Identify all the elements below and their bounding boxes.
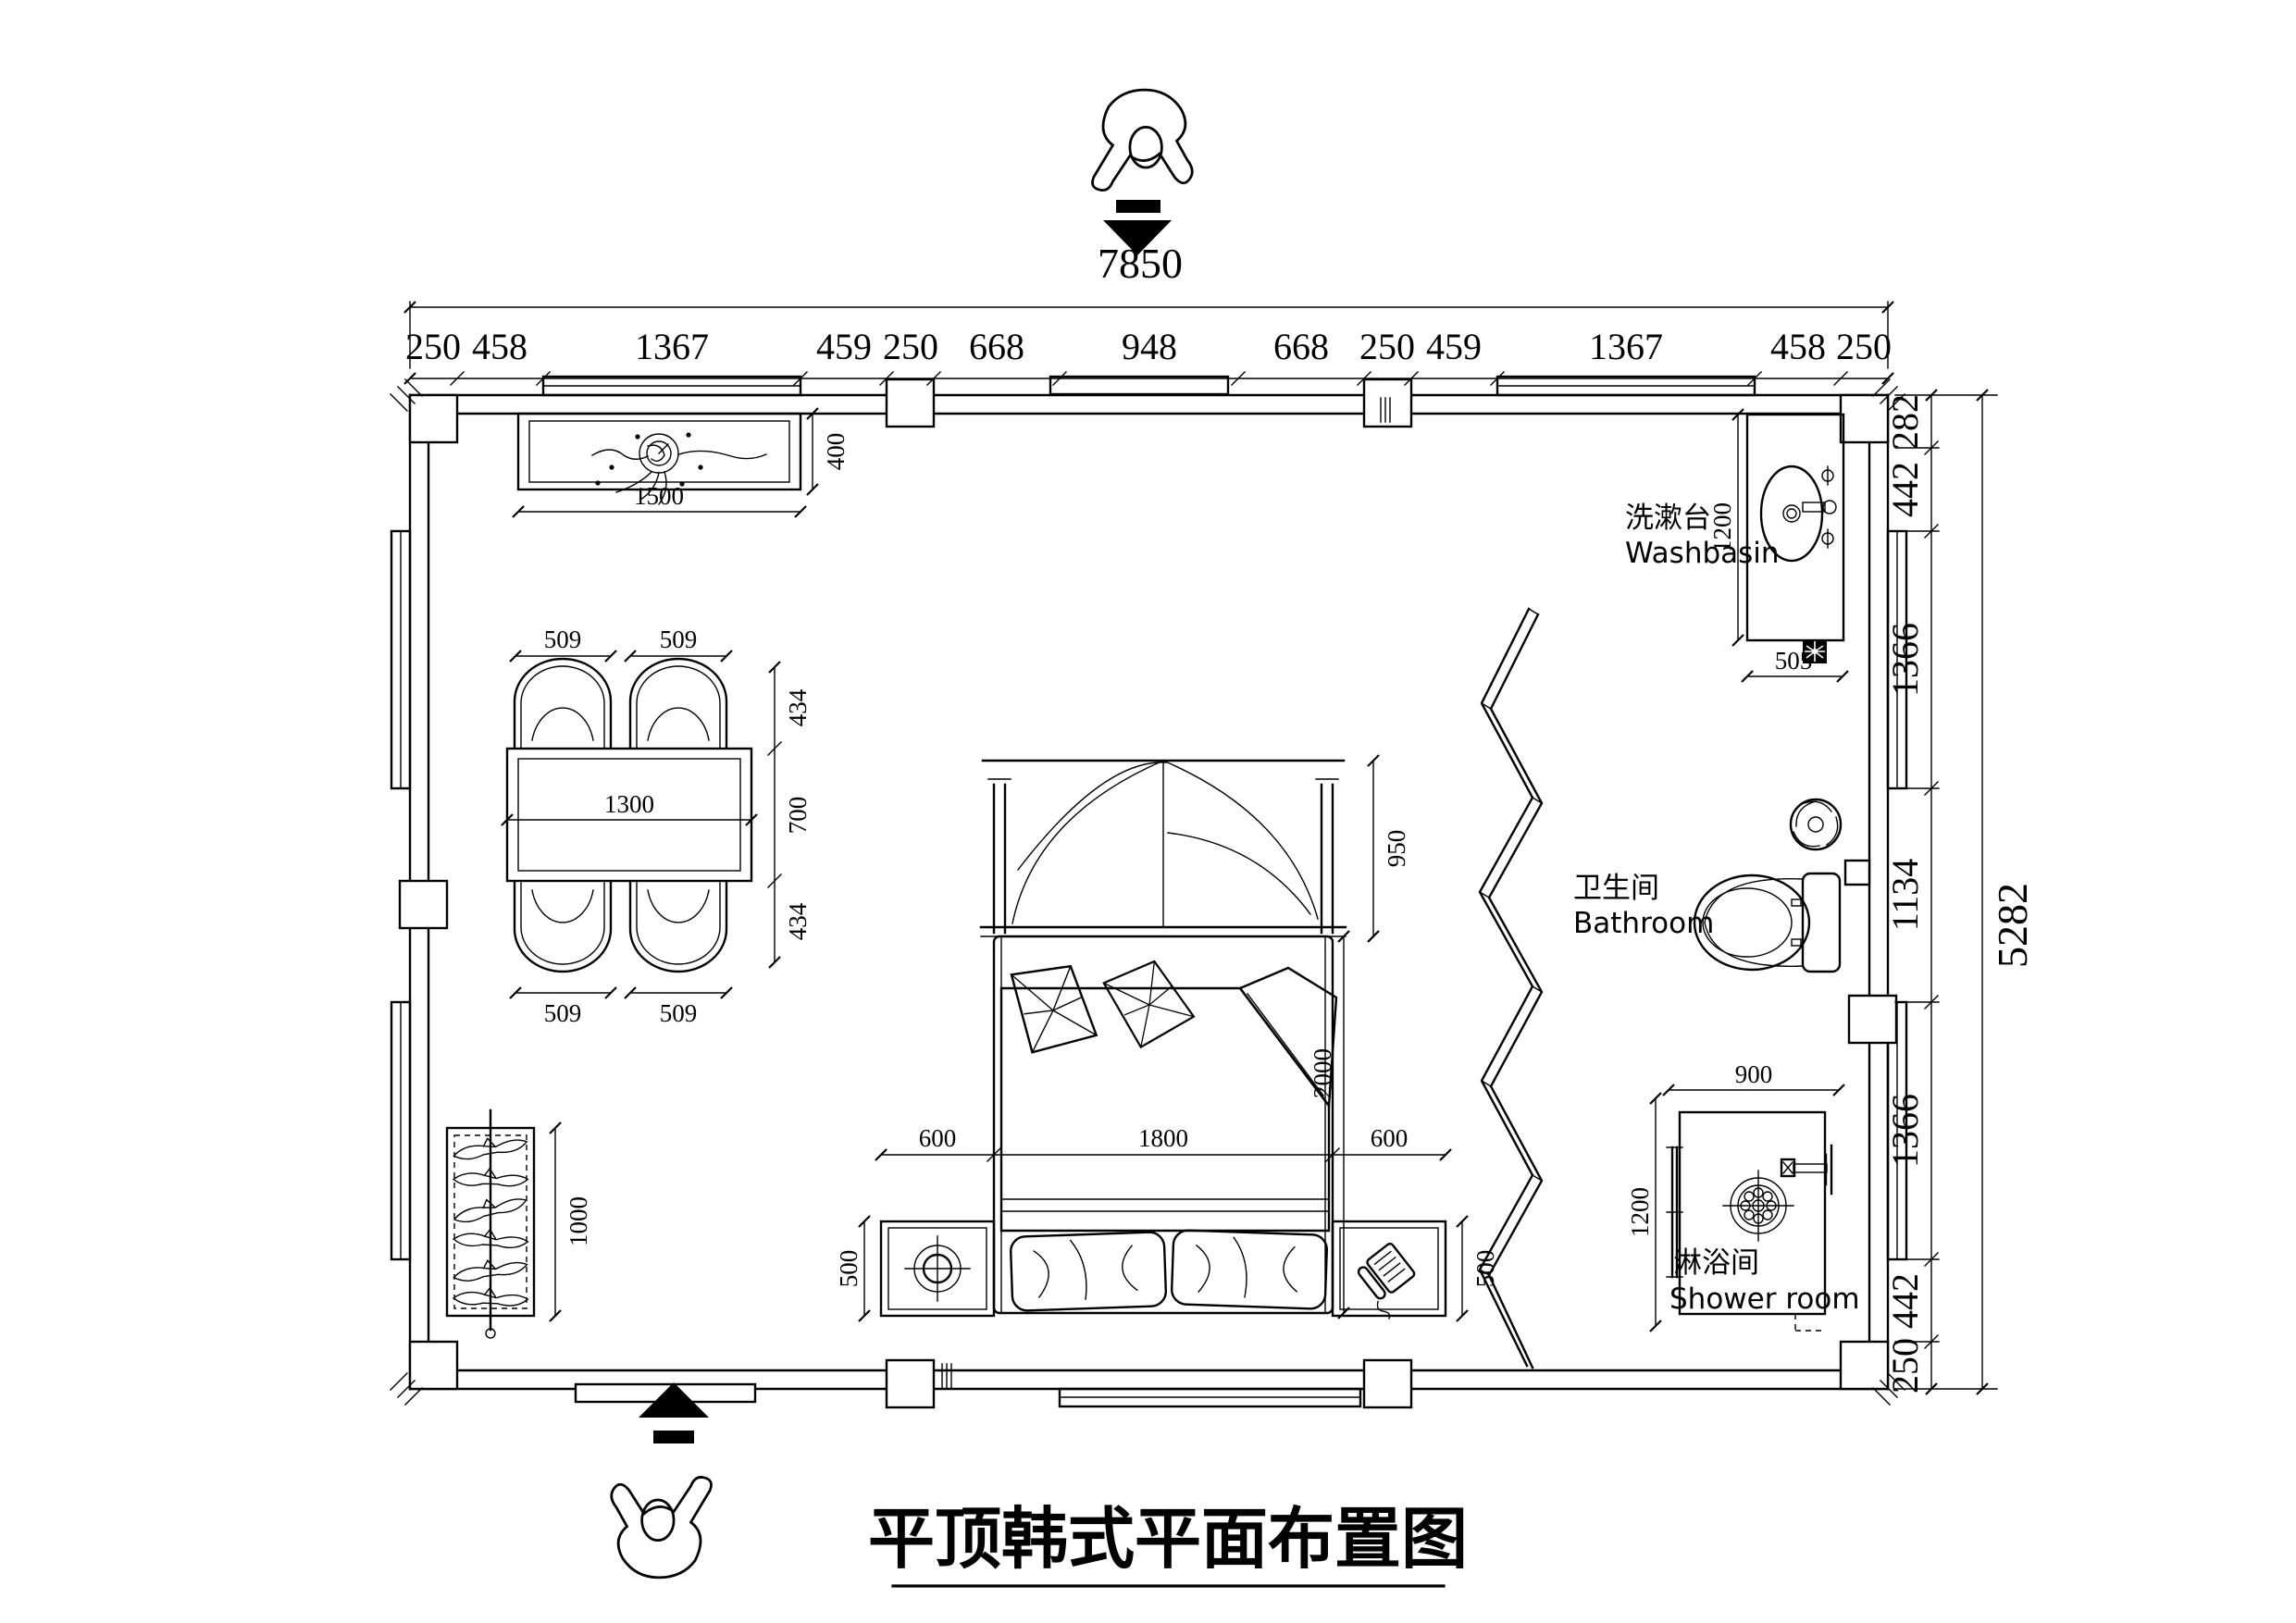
drawing-title: 平顶韩式平面布置图	[868, 1500, 1468, 1578]
dim-table-depth: 700	[784, 797, 812, 835]
dim-seg: 250	[1836, 326, 1892, 367]
dim-seg: 1366	[1884, 1094, 1926, 1168]
wall-counter: 1500 400	[518, 414, 850, 512]
nightstand-right	[1333, 1221, 1446, 1320]
dim-chair: 509	[544, 626, 582, 653]
dim-seg: 442	[1884, 1273, 1926, 1329]
label-bathroom-zh: 卫生间	[1573, 872, 1659, 905]
entry-bottom	[612, 1382, 712, 1578]
bed-canopy: 950	[981, 761, 1410, 936]
folding-partition	[1480, 609, 1542, 1368]
label-washbasin-zh: 洗漱台	[1625, 502, 1711, 535]
toilet: 卫生间 Bathroom	[1573, 799, 1841, 972]
dim-wardrobe: 1000	[565, 1196, 592, 1246]
dim-bed-width: 1800	[1138, 1124, 1188, 1152]
dim-washbasin-w: 505	[1775, 647, 1813, 675]
dim-seg: 250	[405, 326, 461, 367]
exhaust-fan-icon	[1791, 799, 1841, 849]
shower-drain-icon	[1723, 1171, 1793, 1241]
dim-seg: 459	[1426, 326, 1482, 367]
label-shower-en: Shower room	[1669, 1282, 1860, 1316]
label-bathroom-en: Bathroom	[1573, 907, 1714, 940]
dim-seg: 1134	[1884, 859, 1926, 932]
dim-seg: 282	[1884, 394, 1926, 450]
entry-door-top	[1050, 377, 1228, 394]
dim-seg: 948	[1122, 326, 1177, 367]
dim-chair: 509	[660, 626, 698, 653]
dim-bed-length: 2000	[1309, 1048, 1336, 1098]
dim-chair: 509	[660, 999, 698, 1027]
dim-table-width: 1300	[604, 790, 654, 818]
label-shower-zh: 淋浴间	[1673, 1246, 1759, 1280]
entry-top	[1092, 90, 1192, 255]
dim-seg: 442	[1884, 462, 1926, 517]
dim-counter-depth: 400	[822, 433, 850, 471]
dim-stand-depth: 500	[835, 1250, 863, 1288]
window-left-upper	[391, 531, 410, 788]
dim-seg: 668	[1273, 326, 1329, 367]
floor-plan-drawing: 7850 250 458 1367 459 250 668 948 668 25…	[0, 0, 2296, 1623]
dim-seg: 1367	[635, 326, 709, 367]
dim-stand: 600	[1371, 1124, 1409, 1152]
window-top-left	[543, 377, 800, 395]
dim-seg: 458	[472, 326, 527, 367]
dim-seg: 1367	[1589, 326, 1663, 367]
washbasin-counter: 1200 505 洗漱台 Washbasin	[1625, 415, 1843, 676]
label-washbasin-en: Washbasin	[1625, 537, 1780, 570]
person-figure-icon	[612, 1477, 712, 1577]
dim-shower-w: 900	[1735, 1060, 1773, 1088]
floor-plan-sheet: 7850 250 458 1367 459 250 668 948 668 25…	[0, 0, 2296, 1623]
top-dimension-chain: 7850 250 458 1367 459 250 668 948 668 25…	[405, 240, 1892, 385]
dim-chair-depth: 434	[784, 688, 812, 726]
shower-room: 900 1200 淋浴间 Shower room	[1626, 1060, 1860, 1331]
telephone-icon	[1351, 1243, 1427, 1320]
dim-seg: 459	[816, 326, 872, 367]
dim-chair-depth: 434	[784, 902, 812, 940]
dim-seg: 668	[969, 326, 1024, 367]
dim-seg: 458	[1770, 326, 1826, 367]
dim-chair: 509	[544, 999, 582, 1027]
bed-dimensions: 600 1800 600 2000 500 500	[835, 936, 1499, 1316]
dim-shower-d: 1200	[1626, 1187, 1654, 1237]
dim-seg: 250	[1359, 326, 1415, 367]
dim-stand: 600	[919, 1124, 957, 1152]
dim-canopy: 950	[1383, 830, 1410, 868]
dim-seg: 1366	[1884, 623, 1926, 697]
window-top-right	[1497, 377, 1755, 395]
dim-counter-width: 1500	[634, 482, 684, 510]
window-left-lower	[391, 1002, 410, 1259]
person-figure-icon	[1092, 90, 1192, 190]
wardrobe-rack: 1000	[447, 1110, 592, 1338]
dining-set: 509 509 509 509 434 700 434 1300	[507, 626, 812, 1027]
window-bottom	[1060, 1389, 1360, 1406]
dim-right-total: 5282	[1989, 883, 2036, 968]
dim-seg: 250	[1884, 1338, 1926, 1394]
drawing-title-block: 平顶韩式平面布置图	[868, 1500, 1468, 1586]
nightstand-left	[881, 1221, 994, 1316]
dim-seg: 250	[883, 326, 938, 367]
